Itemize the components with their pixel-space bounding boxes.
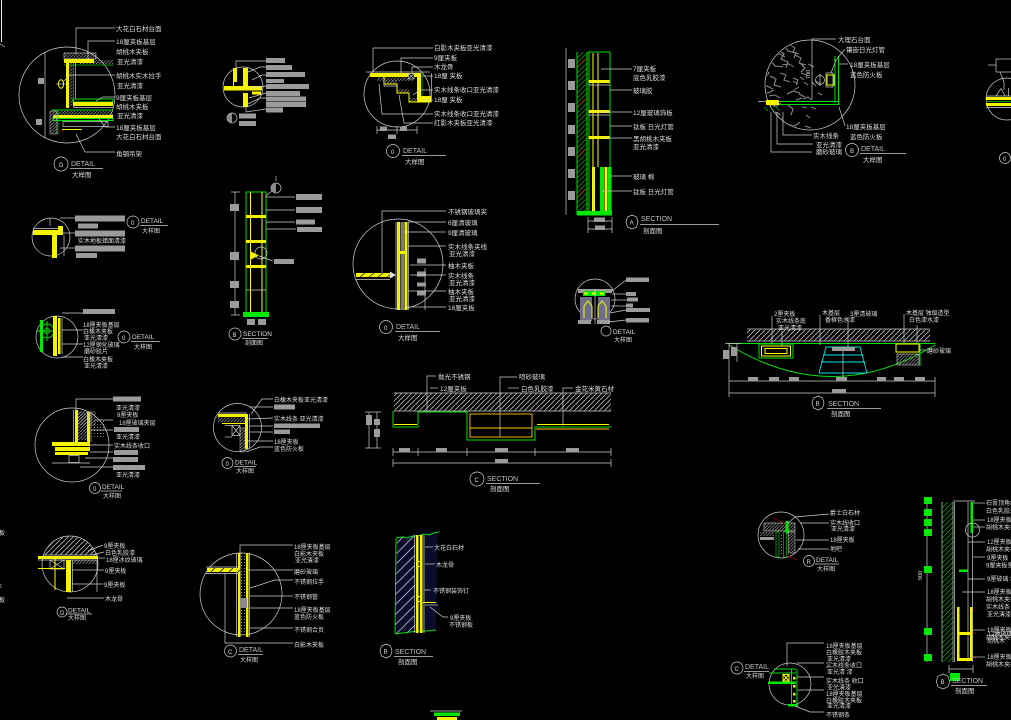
svg-text:大理石台面: 大理石台面 — [838, 35, 871, 44]
svg-text:夹板: 夹板 — [0, 529, 5, 537]
svg-text:DETAIL: DETAIL — [71, 161, 95, 168]
svg-text:蓝色防火板: 蓝色防火板 — [850, 132, 883, 141]
svg-text:磨砂胶片: 磨砂胶片 — [84, 348, 108, 356]
svg-text:18厘夹板: 18厘夹板 — [987, 588, 1011, 596]
svg-text:蓝色防火板: 蓝色防火板 — [294, 613, 324, 621]
svg-text:亚光清漆: 亚光清漆 — [449, 249, 476, 258]
svg-text:木龙骨: 木龙骨 — [434, 62, 454, 71]
svg-text:亚光清漆: 亚光清漆 — [827, 655, 851, 663]
svg-text:18厘夹板: 18厘夹板 — [987, 653, 1011, 661]
svg-text:SECTION: SECTION — [243, 331, 272, 338]
svg-text:18厘夹板基层: 18厘夹板基层 — [826, 642, 863, 650]
svg-text:白色乳胶漆: 白色乳胶漆 — [521, 384, 554, 393]
svg-text:DETAIL: DETAIL — [816, 557, 839, 564]
svg-text:18厘冰纹玻璃: 18厘冰纹玻璃 — [106, 556, 143, 564]
svg-text:实木线条 亚光清漆: 实木线条 亚光清漆 — [274, 415, 324, 423]
svg-text:B: B — [384, 650, 388, 656]
svg-text:900: 900 — [918, 571, 924, 580]
svg-text:不锈钢板: 不锈钢板 — [449, 621, 473, 629]
svg-text:实木线条: 实木线条 — [813, 131, 840, 140]
svg-text:亚光清漆: 亚光清漆 — [827, 702, 851, 710]
svg-text:大花白石材台面: 大花白石材台面 — [116, 132, 162, 141]
svg-text:剖面图: 剖面图 — [955, 686, 975, 695]
svg-text:9厘夹板: 9厘夹板 — [987, 554, 1008, 562]
svg-text:大花白石材台面: 大花白石材台面 — [116, 24, 162, 33]
svg-text:大花白石材: 大花白石材 — [434, 544, 464, 552]
svg-text:玻璃胶: 玻璃胶 — [633, 86, 653, 95]
svg-text:12厘钢化玻璃: 12厘钢化玻璃 — [83, 341, 120, 349]
svg-text:大样图: 大样图 — [103, 492, 121, 500]
svg-text:大样图: 大样图 — [746, 672, 764, 680]
svg-text:DETAIL: DETAIL — [403, 148, 427, 155]
svg-text:胡桃木夹板: 胡桃木夹板 — [986, 546, 1011, 554]
svg-text:白影木夹板亚光清漆: 白影木夹板亚光清漆 — [434, 43, 493, 52]
svg-text:实木线条 收口: 实木线条 收口 — [826, 677, 864, 685]
svg-text:大样图: 大样图 — [240, 656, 258, 664]
svg-text:木基层: 木基层 — [822, 309, 840, 317]
svg-text:蓝色防火板: 蓝色防火板 — [274, 445, 304, 453]
svg-text:亚光清漆: 亚光清漆 — [117, 57, 144, 66]
svg-text:亚光清漆: 亚光清漆 — [831, 525, 855, 533]
svg-text:钛板 日光灯管: 钛板 日光灯管 — [633, 122, 674, 131]
svg-text:9厘夹板: 9厘夹板 — [434, 53, 458, 62]
svg-text:18厘夹板: 18厘夹板 — [987, 516, 1011, 524]
svg-text:胡桃木夹板: 胡桃木夹板 — [986, 596, 1011, 604]
svg-text:实木线收口: 实木线收口 — [830, 519, 860, 527]
svg-text:6厘清玻璃: 6厘清玻璃 — [448, 218, 478, 227]
svg-text:SECTION: SECTION — [828, 401, 859, 408]
svg-text:大样图: 大样图 — [134, 343, 152, 351]
svg-text:大样图: 大样图 — [398, 333, 418, 342]
svg-text:D: D — [60, 611, 65, 617]
svg-text:不锈钢合页: 不锈钢合页 — [294, 626, 324, 634]
svg-text:柚木夹板: 柚木夹板 — [448, 287, 475, 296]
svg-text:DETAIL: DETAIL — [132, 334, 155, 341]
svg-text:剖面图: 剖面图 — [398, 657, 418, 666]
svg-text:钛板 日光灯管: 钛板 日光灯管 — [633, 187, 674, 196]
svg-text:18厘夹板基层: 18厘夹板基层 — [83, 321, 120, 329]
svg-text:A: A — [630, 221, 634, 227]
svg-text:红影木夹板亚光清漆: 红影木夹板亚光清漆 — [434, 118, 493, 127]
svg-text:9厘夹板: 9厘夹板 — [104, 542, 125, 550]
svg-text:DETAIL: DETAIL — [861, 146, 885, 153]
svg-text:9厘清玻璃: 9厘清玻璃 — [448, 228, 478, 237]
svg-text:亚光清漆: 亚光清漆 — [117, 81, 144, 90]
svg-text:胡桃木夹板: 胡桃木夹板 — [116, 47, 149, 56]
svg-text:剖面图: 剖面图 — [245, 339, 263, 347]
svg-text:实木线条: 实木线条 — [986, 603, 1010, 611]
svg-text:胡桃木: 胡桃木 — [987, 637, 1005, 645]
svg-text:18厘 夹板: 18厘 夹板 — [434, 71, 463, 80]
svg-text:不锈钢管: 不锈钢管 — [294, 593, 318, 601]
svg-text:18厘 夹板: 18厘 夹板 — [434, 95, 463, 104]
svg-text:不锈钢拉手: 不锈钢拉手 — [294, 578, 324, 586]
svg-text:700: 700 — [806, 70, 812, 79]
svg-text:磨砂玻璃: 磨砂玻璃 — [816, 147, 843, 156]
svg-text:B: B — [850, 149, 854, 155]
svg-text:12厘夹板: 12厘夹板 — [987, 538, 1011, 546]
svg-text:大样图: 大样图 — [817, 565, 835, 573]
svg-text:DETAIL: DETAIL — [141, 218, 164, 225]
svg-text:9厘夹板: 9厘夹板 — [105, 567, 126, 575]
svg-text:底色乳胶漆: 底色乳胶漆 — [633, 73, 666, 82]
svg-text:亚光清漆: 亚光清漆 — [84, 362, 108, 370]
svg-text:实木线条收口: 实木线条收口 — [826, 662, 862, 670]
svg-text:木: 木 — [0, 582, 2, 590]
svg-text:2厘夹板: 2厘夹板 — [774, 310, 795, 318]
svg-text:剖面图: 剖面图 — [490, 484, 510, 493]
svg-text:柚木夹板: 柚木夹板 — [448, 261, 475, 270]
svg-text:DETAIL: DETAIL — [235, 460, 258, 467]
svg-text:DETAIL: DETAIL — [68, 608, 91, 615]
svg-text:白影木夹板: 白影木夹板 — [294, 550, 324, 558]
svg-text:B: B — [816, 402, 820, 408]
svg-text:DETAIL: DETAIL — [239, 647, 263, 654]
svg-text:R: R — [807, 560, 812, 566]
svg-text:18厘夹板: 18厘夹板 — [448, 303, 475, 312]
svg-text:DETAIL: DETAIL — [745, 664, 769, 671]
svg-text:大样图: 大样图 — [405, 157, 425, 166]
svg-text:蓝色防火板: 蓝色防火板 — [850, 70, 883, 79]
svg-text:地吧: 地吧 — [830, 545, 842, 553]
svg-text:胡桃木夹板: 胡桃木夹板 — [986, 661, 1011, 669]
svg-text:磨砂玻璃: 磨砂玻璃 — [294, 568, 318, 576]
svg-text:18厘夹板基层: 18厘夹板基层 — [116, 37, 156, 46]
svg-text:白色乳胶漆: 白色乳胶漆 — [986, 507, 1011, 515]
svg-text:9厘夹板: 9厘夹板 — [117, 411, 138, 419]
svg-text:C: C — [228, 650, 233, 656]
svg-text:12厘夹板: 12厘夹板 — [440, 384, 467, 393]
svg-text:玻璃 棉: 玻璃 棉 — [633, 172, 655, 181]
svg-text:D: D — [59, 163, 64, 169]
svg-text:18厘夹板基层: 18厘夹板基层 — [826, 690, 863, 698]
svg-text:爵士白石材: 爵士白石材 — [830, 509, 860, 517]
svg-text:12厘玻璃: 12厘玻璃 — [988, 630, 1011, 638]
svg-text:大样图: 大样图 — [72, 170, 92, 179]
svg-text:18厘玻璃夹层: 18厘玻璃夹层 — [119, 419, 156, 427]
svg-text:镶嵌日光灯管: 镶嵌日光灯管 — [846, 45, 886, 54]
svg-text:剖面图: 剖面图 — [643, 226, 663, 235]
svg-text:SECTION: SECTION — [487, 476, 518, 483]
svg-text:磨砂玻璃: 磨砂玻璃 — [927, 347, 951, 355]
svg-text:18厘夹板基层: 18厘夹板基层 — [294, 606, 331, 614]
svg-text:亚光清漆: 亚光清漆 — [84, 334, 108, 342]
svg-text:亚光清漆: 亚光清漆 — [116, 404, 140, 412]
svg-text:胡桃木夹板: 胡桃木夹板 — [986, 524, 1011, 532]
svg-text:白影木夹板: 白影木夹板 — [294, 641, 324, 649]
svg-text:实木线条收口: 实木线条收口 — [114, 442, 150, 450]
svg-text:9厘玻璃 墙: 9厘玻璃 墙 — [987, 575, 1011, 583]
svg-text:18厘夹板基层: 18厘夹板基层 — [850, 60, 890, 69]
svg-text:亚光清漆: 亚光清漆 — [827, 684, 851, 692]
svg-text:实木线条底: 实木线条底 — [776, 317, 806, 325]
svg-text:木基层 独级造型: 木基层 独级造型 — [906, 309, 950, 317]
svg-text:胡桃木夹板: 胡桃木夹板 — [116, 102, 149, 111]
svg-text:剖面图: 剖面图 — [831, 409, 851, 418]
svg-text:大样图: 大样图 — [863, 155, 883, 164]
svg-text:亚光清漆: 亚光清漆 — [816, 140, 843, 149]
svg-text:12厘玻璃饰板: 12厘玻璃饰板 — [633, 108, 673, 117]
svg-text:大样图: 大样图 — [68, 614, 86, 622]
svg-text:9厘夹板条: 9厘夹板条 — [986, 562, 1011, 570]
svg-text:白橡胶木夹板: 白橡胶木夹板 — [826, 649, 862, 657]
svg-text:喷砂玻璃: 喷砂玻璃 — [519, 372, 546, 381]
svg-text:不锈钢玻璃夹: 不锈钢玻璃夹 — [448, 207, 488, 216]
svg-text:DETAIL: DETAIL — [613, 329, 636, 336]
svg-text:实木线条收口亚光清漆: 实木线条收口亚光清漆 — [434, 109, 500, 118]
svg-text:18厘夹板: 18厘夹板 — [274, 438, 299, 446]
svg-text:18厘夹板基层: 18厘夹板基层 — [846, 122, 886, 131]
svg-text:胡桃木实木拉手: 胡桃木实木拉手 — [116, 71, 162, 80]
svg-text:夹板: 夹板 — [0, 596, 5, 604]
svg-text:实木线条夹线: 实木线条夹线 — [448, 242, 488, 251]
svg-text:亚光清漆: 亚光清漆 — [778, 324, 802, 332]
svg-text:亚光清漆: 亚光清漆 — [117, 111, 144, 120]
svg-text:大样图: 大样图 — [142, 227, 160, 235]
svg-text:角钢吊架: 角钢吊架 — [116, 149, 143, 158]
svg-text:木龙骨: 木龙骨 — [436, 561, 454, 569]
svg-text:白橡木夹板: 白橡木夹板 — [83, 356, 113, 364]
svg-text:黑胡桃木夹板: 黑胡桃木夹板 — [633, 134, 673, 143]
svg-text:9厘夹板: 9厘夹板 — [104, 581, 125, 589]
svg-text:9厘夹板基层: 9厘夹板基层 — [116, 93, 153, 102]
svg-text:9厘夹板: 9厘夹板 — [450, 614, 471, 622]
svg-text:木龙骨: 木龙骨 — [105, 595, 123, 603]
svg-text:大样图: 大样图 — [236, 467, 254, 475]
svg-text:实木地板蜡面清漆: 实木地板蜡面清漆 — [78, 237, 126, 245]
svg-text:抛光不锈钢: 抛光不锈钢 — [438, 372, 471, 381]
svg-text:DETAIL: DETAIL — [102, 484, 125, 491]
svg-text:石膏顶角线: 石膏顶角线 — [986, 499, 1011, 507]
svg-text:亚光清漆: 亚光清漆 — [116, 433, 140, 441]
svg-text:白橡木夹板亚光清漆: 白橡木夹板亚光清漆 — [274, 396, 328, 404]
svg-text:不锈钢条: 不锈钢条 — [826, 711, 850, 719]
svg-text:18厘夹板基层: 18厘夹板基层 — [116, 123, 156, 132]
svg-text:亚光清漆: 亚光清漆 — [633, 142, 660, 151]
svg-text:SECTION: SECTION — [395, 649, 426, 656]
svg-text:DETAIL: DETAIL — [396, 324, 420, 331]
svg-text:C: C — [475, 478, 480, 484]
svg-text:SECTION: SECTION — [952, 678, 983, 685]
svg-text:实木线条收口亚光清漆: 实木线条收口亚光清漆 — [434, 85, 500, 94]
svg-text:不锈钢装饰钉: 不锈钢装饰钉 — [433, 587, 469, 595]
svg-text:亚光清漆: 亚光清漆 — [449, 294, 476, 303]
svg-text:亚光清 漆: 亚光清 漆 — [827, 668, 853, 676]
svg-text:亚光清漆: 亚光清漆 — [116, 471, 140, 479]
svg-text:白色乳胶漆: 白色乳胶漆 — [105, 549, 135, 557]
svg-text:亚光清漆: 亚光清漆 — [987, 611, 1011, 619]
svg-text:SECTION: SECTION — [641, 216, 672, 223]
svg-text:B: B — [233, 333, 237, 339]
svg-text:3厘清玻璃: 3厘清玻璃 — [850, 310, 877, 318]
svg-text:亚光清漆: 亚光清漆 — [295, 557, 319, 565]
svg-text:金花米黄石材: 金花米黄石材 — [575, 384, 615, 393]
svg-text:实木线条: 实木线条 — [448, 271, 475, 280]
svg-text:大样图: 大样图 — [614, 336, 632, 344]
svg-text:白橡木夹板: 白橡木夹板 — [83, 328, 113, 336]
svg-text:7厘夹板: 7厘夹板 — [633, 64, 657, 73]
svg-text:18厘夹板: 18厘夹板 — [830, 536, 855, 544]
svg-text:B: B — [941, 680, 945, 686]
svg-text:亚光清漆: 亚光清漆 — [449, 278, 476, 287]
svg-text:白色漆水漆: 白色漆水漆 — [909, 316, 939, 324]
svg-text:18厘夹板基层: 18厘夹板基层 — [294, 543, 331, 551]
svg-text:C: C — [735, 667, 740, 673]
